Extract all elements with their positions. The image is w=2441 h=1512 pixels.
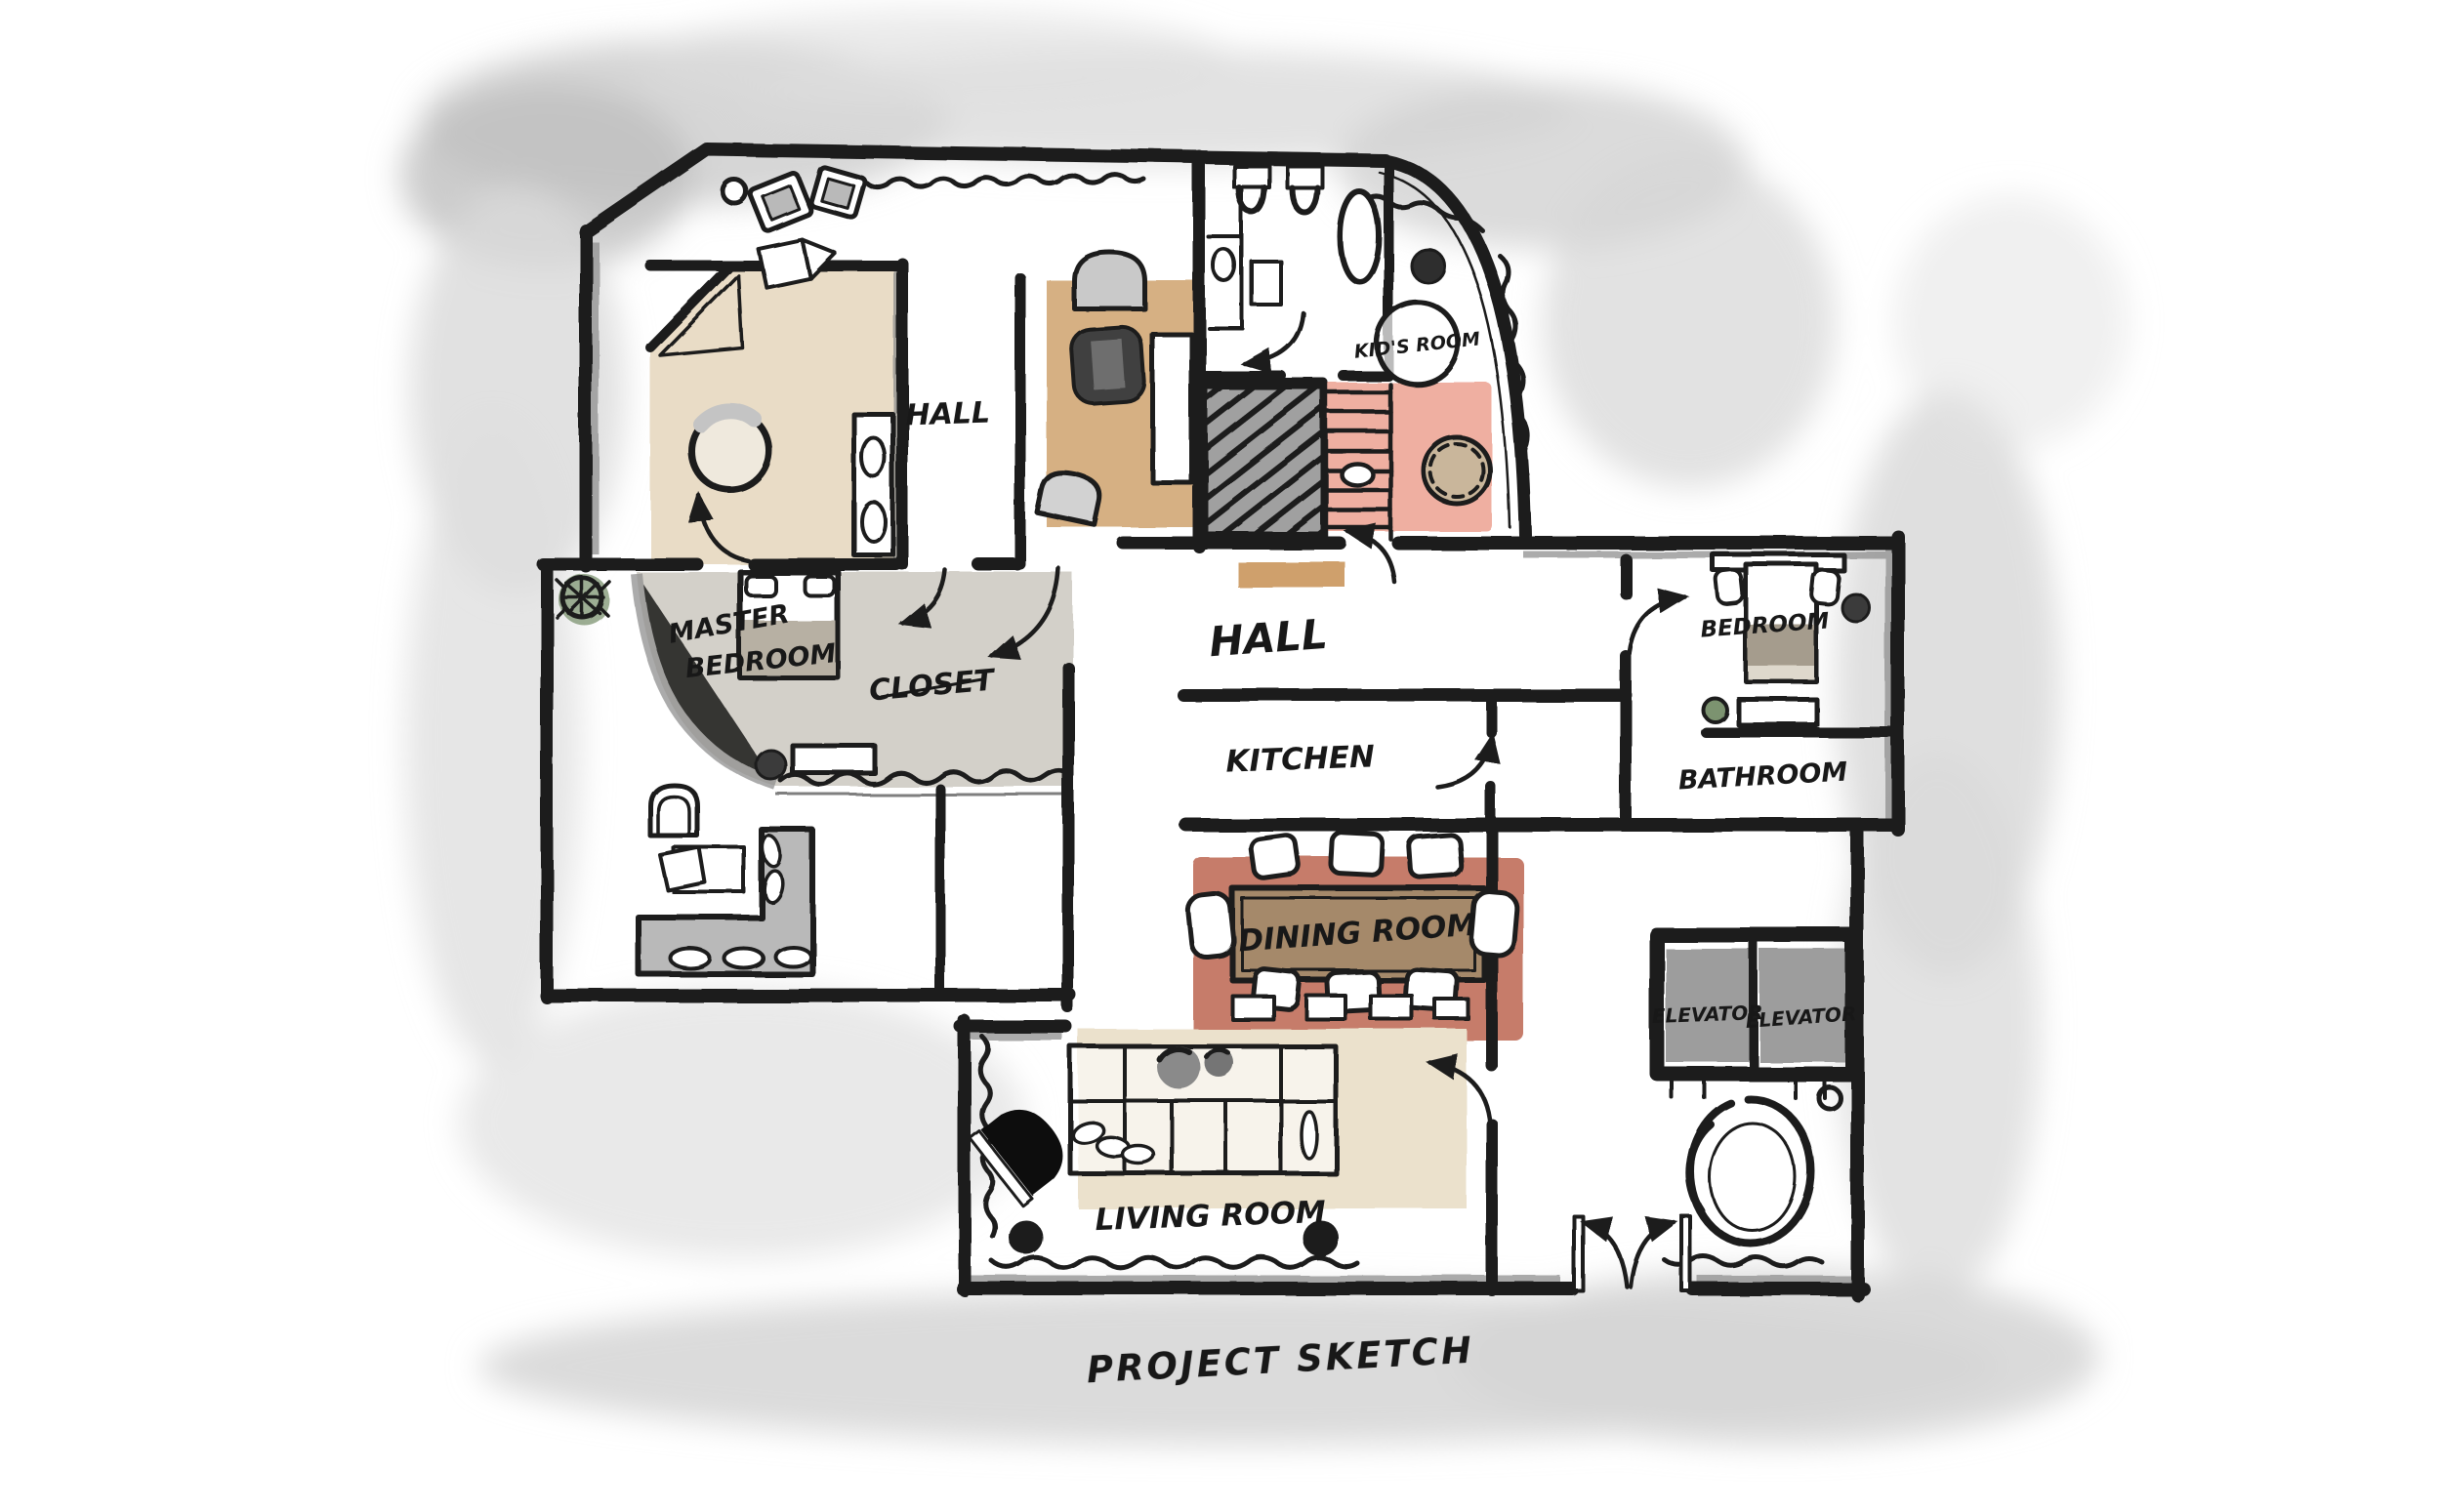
chair-icon [1186,892,1235,959]
stool-icon [1841,593,1869,621]
label-bathroom: BATHROOM [1677,756,1848,796]
bench-icon [1738,699,1816,724]
chair-icon [1409,834,1463,879]
label-hall-center: HALL [1208,610,1329,666]
shower-icon [1252,262,1281,305]
sink-icon [1214,250,1235,281]
door-leaf [1574,1216,1583,1290]
chair-icon [660,847,705,890]
label-hall-upper: HALL [905,396,991,433]
toilet-icon [1287,166,1322,213]
stool-icon [1411,249,1444,282]
label-living-room: LIVING ROOM [1095,1195,1327,1238]
side-table-icon [723,180,746,203]
play-table-icon [1424,437,1490,504]
desk-icon [1152,334,1191,482]
plan-canvas: HALL KID'S ROOM MASTER BEDROOM CLOSET HA… [0,0,2441,1512]
plant-icon [1011,1222,1040,1251]
door-swing-arc [1584,1222,1627,1287]
office-chair-icon [1070,326,1145,405]
door-swing-arc [1437,736,1492,787]
chair-icon [1331,833,1384,877]
label-kitchen: KITCHEN [1225,739,1376,779]
floor-plan-sketch: HALL KID'S ROOM MASTER BEDROOM CLOSET HA… [0,0,2441,1512]
sectional-sofa-icon [1070,1046,1336,1173]
door-swing-arc [1244,312,1303,363]
door-stop-circle [1818,1086,1840,1108]
door-swing-arc [1629,597,1685,660]
door-leaf [1681,1216,1690,1290]
bench-icon [793,746,875,773]
bathtub-icon [1340,191,1379,281]
stairwell-hatch [1205,387,1324,535]
stool-icon [757,751,786,780]
plant-icon [1703,698,1726,721]
spiral-stair-icon [1690,1099,1811,1244]
hall-doormat [1237,561,1345,587]
chair-icon [1250,835,1300,879]
door-swing-arc [1347,531,1394,582]
chair-icon [1469,890,1517,957]
armchair-icon [1074,252,1144,308]
toilet-icon [1234,166,1269,213]
lounge-furniture [639,785,812,974]
